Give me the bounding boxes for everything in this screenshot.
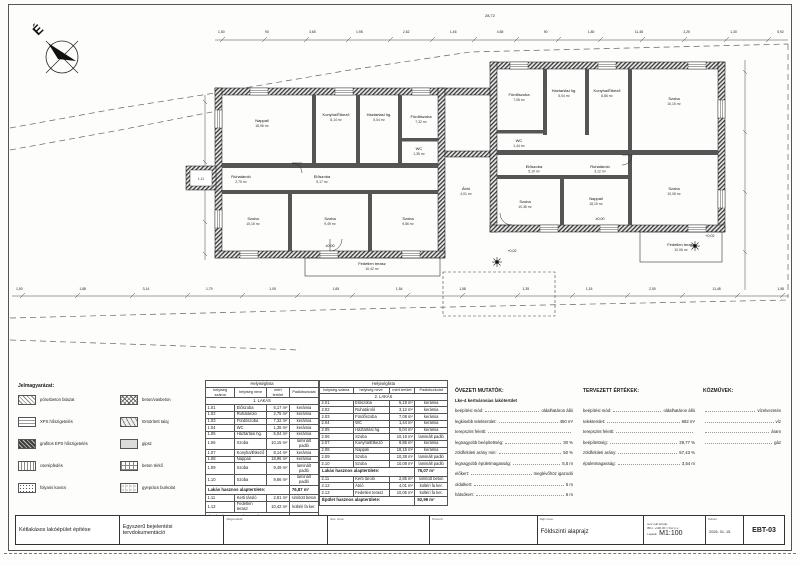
svg-text:Szoba: Szoba bbox=[324, 216, 336, 221]
legend-column-right: beton/vasbetontömörített talajgipszbeton… bbox=[120, 395, 208, 493]
svg-text:7,32 m²: 7,32 m² bbox=[415, 120, 427, 124]
column-header-area: mért terület bbox=[266, 387, 289, 398]
legend-item: XPS hőszigetelés bbox=[18, 417, 106, 427]
legend-title: Jelmagyarázat: bbox=[18, 383, 208, 389]
title-block-client-name: Név, címe: bbox=[328, 516, 430, 544]
dimension-number: 1,58 bbox=[459, 288, 466, 291]
summary-row: Lakás hasznos alapterülete: 76,87 m² bbox=[206, 486, 319, 495]
dimension-number: 2,62 bbox=[403, 31, 410, 34]
svg-text:9,49 m²: 9,49 m² bbox=[324, 222, 336, 226]
zoning-indicators-panel: ÖVEZETI MUTATÓK: Lke-4 kertvárosias lakó… bbox=[455, 388, 573, 503]
svg-text:Nappali: Nappali bbox=[589, 196, 603, 201]
title-block: Kétlakásos lakóépület építése Egyszerű b… bbox=[15, 515, 785, 545]
dimension-number: 1,15 bbox=[586, 288, 593, 291]
dimension-number: 1,35 bbox=[523, 288, 530, 291]
svg-text:Háztartási hg.: Háztartási hg. bbox=[367, 112, 392, 117]
legend-item: tömörített talaj bbox=[120, 417, 208, 427]
utilities-panel: KÖZMŰVEK: vízelvezetésvízáramgáz bbox=[703, 388, 781, 450]
tree-symbol bbox=[492, 257, 502, 267]
floor-plan-svg: É 28,72 bbox=[0, 0, 800, 380]
svg-text:7,08 m²: 7,08 m² bbox=[513, 98, 525, 102]
info-row: legnagyobb beépítettség:30 % bbox=[455, 440, 573, 445]
dimension-number: 1,98 bbox=[356, 31, 363, 34]
svg-text:Ruhatároló: Ruhatároló bbox=[590, 164, 610, 169]
zoning-title: ÖVEZETI MUTATÓK: bbox=[455, 388, 573, 394]
sheet-edge-line bbox=[4, 553, 796, 554]
svg-text:Szoba: Szoba bbox=[247, 216, 259, 221]
dimension-number: 1,50 bbox=[218, 31, 225, 34]
svg-text:10,15 m²: 10,15 m² bbox=[667, 102, 681, 106]
info-row: előkert:meglévőhöz igazodó bbox=[455, 471, 573, 476]
info-row: terepszint feletti: bbox=[583, 429, 695, 434]
info-row: beépítettség:29,77 % bbox=[583, 440, 695, 445]
dimension-number: 1,46 bbox=[450, 31, 457, 34]
dimension-number: 1,80 bbox=[588, 31, 595, 34]
legend-item: folyami kavics bbox=[18, 483, 106, 493]
level-marker: +0,02 bbox=[705, 234, 714, 238]
table-row: 1.07Konyha/Étkező8,14 m²kerámia bbox=[206, 450, 319, 457]
table-row: 1.11Kerti tároló2,81 m²simított beton bbox=[206, 495, 319, 502]
svg-text:Fürdőszoba: Fürdőszoba bbox=[508, 92, 530, 97]
svg-text:WC: WC bbox=[416, 146, 423, 151]
svg-text:Átrió: Átrió bbox=[462, 186, 471, 191]
table-title: Helyiséglista bbox=[206, 381, 319, 388]
legend-item: pórusbeton falazat bbox=[18, 395, 106, 405]
table-row: 1.12Fedetlen terasz10,42 m²kültéri fa ke… bbox=[206, 501, 319, 512]
dash-swatch-icon bbox=[18, 417, 36, 427]
svg-text:Előszoba: Előszoba bbox=[314, 174, 331, 179]
section-header: 2. LAKÁS bbox=[320, 394, 448, 401]
table-row: 2.07Konyha/Étkező8,86 m²kerámia bbox=[320, 440, 448, 447]
drawing-sheet: É 28,72 bbox=[0, 0, 800, 566]
dimension-number: 4,65 bbox=[497, 31, 504, 34]
svg-text:10,15 m²: 10,15 m² bbox=[246, 222, 260, 226]
info-row: épületmagasság:3,54 m bbox=[583, 461, 695, 466]
svg-text:Szoba: Szoba bbox=[668, 186, 680, 191]
column-header-number: helyiség száma bbox=[206, 387, 235, 398]
svg-text:Szoba: Szoba bbox=[402, 216, 414, 221]
table-row: 2.08Nappali18,15 m²kerámia bbox=[320, 447, 448, 454]
info-row: vízelvezetés bbox=[703, 408, 781, 413]
legend-item: gyeprács burkolat bbox=[120, 483, 208, 493]
dimension-number: 3,65 bbox=[309, 31, 316, 34]
title-block-designer: Tervező: bbox=[430, 516, 538, 544]
svg-text:Háztartási hg.: Háztartási hg. bbox=[552, 88, 577, 93]
legend-item: beton/vasbeton bbox=[120, 395, 208, 405]
legend-item: gipsz bbox=[120, 439, 208, 449]
table-row: 1.02Ruhatároló2,75 m²kerámia bbox=[206, 411, 319, 418]
table-title: Helyiséglista bbox=[320, 381, 448, 388]
dimension-number: 1,54 bbox=[396, 288, 403, 291]
info-row: legnagyobb épületmagasság:5,5 m bbox=[455, 461, 573, 466]
info-row: zöldfelületi arány:57,43 % bbox=[583, 450, 695, 455]
date-label: Dátum: bbox=[708, 517, 718, 521]
table-row: 2.03Fürdőszoba7,08 m²kerámia bbox=[320, 414, 448, 421]
dimension-number: 1,30 bbox=[730, 31, 737, 34]
room-schedule-apartment-1: Helyiséglista helyiség száma helyiség ne… bbox=[205, 380, 319, 522]
dashed-extension-outline bbox=[443, 272, 555, 316]
info-row: legkisebb telekterület:450 m² bbox=[455, 419, 573, 424]
legend-item: cserépfedés bbox=[18, 461, 106, 471]
designer-label: Tervező: bbox=[432, 517, 443, 521]
svg-text:10,38 m²: 10,38 m² bbox=[518, 205, 532, 209]
title-block-client: Megrendelő: bbox=[224, 516, 328, 544]
svg-text:8,86 m²: 8,86 m² bbox=[601, 94, 613, 98]
svg-text:5,04 m²: 5,04 m² bbox=[558, 94, 570, 98]
svg-text:3,12 m²: 3,12 m² bbox=[594, 170, 606, 174]
dimension-number: 1,88 bbox=[79, 288, 86, 291]
drawing-label: Rajz neve: bbox=[540, 517, 554, 521]
dimension-number: 2,25 bbox=[683, 31, 690, 34]
svg-text:10,06 m²: 10,06 m² bbox=[674, 248, 688, 252]
svg-text:Szoba: Szoba bbox=[519, 199, 531, 204]
info-row: gáz bbox=[703, 440, 781, 445]
info-row: terepszint feletti: bbox=[455, 429, 573, 434]
solid-swatch-icon bbox=[120, 439, 138, 449]
table-row: 2.13Fedetlen terasz10,06 m²kültéri fa ke… bbox=[320, 490, 448, 497]
table-row: 2.04WC1,44 m²kerámia bbox=[320, 420, 448, 427]
table-row: 2.10Szoba10,08 m²laminált padló bbox=[320, 461, 448, 468]
table-row: 1.04WC1,35 m²kerámia bbox=[206, 425, 319, 432]
svg-text:5,04 m²: 5,04 m² bbox=[373, 118, 385, 122]
svg-text:Szoba: Szoba bbox=[668, 96, 680, 101]
table-row: 1.03Fürdőszoba7,32 m²kerámia bbox=[206, 418, 319, 425]
svg-text:1,35 m²: 1,35 m² bbox=[413, 152, 425, 156]
bottom-dimension-numbers: 1,501,883,141,791,051,651,541,581,351,15… bbox=[16, 288, 784, 291]
info-row: beépítési mód:oldalhatáron álló bbox=[455, 408, 573, 413]
legend-item: beton térkő bbox=[120, 461, 208, 471]
dimension-number: 1,05 bbox=[269, 288, 276, 291]
dark-swatch-icon bbox=[18, 439, 36, 449]
dimension-number: 2,50 bbox=[649, 288, 656, 291]
summary-row: Lakás hasznos alapterülete: 76,07 m² bbox=[320, 467, 448, 476]
info-row: beépítési mód:oldalhatáron álló bbox=[583, 408, 695, 413]
svg-text:Fedetlen terasz: Fedetlen terasz bbox=[358, 261, 386, 266]
table-row: 2.02Ruhatároló3,12 m²kerámia bbox=[320, 407, 448, 414]
grid-swatch-icon bbox=[120, 461, 138, 471]
overall-dimension: 28,72 bbox=[485, 13, 496, 18]
dimension-number: 11,48 bbox=[712, 288, 720, 291]
table-row: 1.01Előszoba5,17 m²kerámia bbox=[206, 405, 319, 412]
info-row: oldalkert:5 m bbox=[455, 482, 573, 487]
top-dimension-numbers: 1,50903,651,982,621,464,65901,8011,482,2… bbox=[218, 31, 784, 34]
room-schedule-apartment-2: Helyiséglista helyiség száma helyiség ne… bbox=[319, 380, 448, 506]
north-compass-icon: É bbox=[30, 21, 78, 73]
table-row: 2.05Háztartási hg.5,04 m²kerámia bbox=[320, 427, 448, 434]
table-row: 2.12Átrió4,01 m²kültéri fa ker. bbox=[320, 483, 448, 490]
column-header-name: helyiség neve bbox=[235, 387, 267, 398]
client-name-label: Név, címe: bbox=[330, 517, 344, 521]
svg-text:Fürdőszoba: Fürdőszoba bbox=[410, 114, 432, 119]
dimension-number: 1,65 bbox=[333, 288, 340, 291]
column-header-floor: Padlóburkolat bbox=[289, 387, 318, 398]
svg-text:4,01 m²: 4,01 m² bbox=[460, 192, 472, 196]
svg-text:Konyha/Étkező: Konyha/Étkező bbox=[594, 88, 622, 93]
svg-text:9,86 m²: 9,86 m² bbox=[402, 222, 414, 226]
table-row: 2.09Szoba10,38 m²laminált padló bbox=[320, 454, 448, 461]
info-row: telekterület:682 m² bbox=[583, 419, 695, 424]
cross-swatch-icon bbox=[120, 395, 138, 405]
svg-text:18,96 m²: 18,96 m² bbox=[255, 124, 269, 128]
client-label: Megrendelő: bbox=[226, 517, 243, 521]
svg-text:18,15 m²: 18,15 m² bbox=[589, 202, 603, 206]
svg-text:2,75 m²: 2,75 m² bbox=[235, 180, 247, 184]
svg-text:1,44 m²: 1,44 m² bbox=[513, 144, 525, 148]
level-marker: ±0,00 bbox=[326, 244, 335, 248]
info-row: hátsókert:6 m bbox=[455, 492, 573, 497]
svg-text:Ruhatároló: Ruhatároló bbox=[231, 174, 251, 179]
level-marker: +0,02 bbox=[507, 249, 516, 253]
info-row: víz bbox=[703, 419, 781, 424]
utilities-title: KÖZMŰVEK: bbox=[703, 388, 781, 394]
griddots-swatch-icon bbox=[120, 483, 138, 493]
table-row: 1.06Szoba10,15 m²laminált padló bbox=[206, 438, 319, 449]
dimension-number: 3,14 bbox=[143, 288, 150, 291]
level-marker: ±0,00 bbox=[596, 217, 605, 221]
svg-text:8,14 m²: 8,14 m² bbox=[330, 118, 342, 122]
svg-text:Nappali: Nappali bbox=[255, 118, 269, 123]
svg-text:WC: WC bbox=[516, 138, 523, 143]
dimension-number: 1,50 bbox=[16, 288, 23, 291]
dimension-number: 1,58 bbox=[777, 288, 784, 291]
footer-row: Épület hasznos alapterülete: 92,99 m² bbox=[320, 496, 448, 505]
title-block-sheet-number: EBT-03 bbox=[744, 516, 784, 544]
dimension-number: 1,79 bbox=[206, 288, 213, 291]
section-header: 1. LAKÁS bbox=[206, 398, 319, 405]
dimension-number: 90 bbox=[265, 31, 269, 34]
title-block-project: Kétlakásos lakóépület építése bbox=[16, 516, 120, 544]
scale-label: Lépték: bbox=[647, 533, 657, 537]
table-row: 1.09Szoba9,49 m²laminált padló bbox=[206, 463, 319, 474]
table-row: 2.01Előszoba5,19 m²kerámia bbox=[320, 400, 448, 407]
svg-text:Előszoba: Előszoba bbox=[526, 164, 543, 169]
date-value: 2026. 01. 15. bbox=[709, 530, 740, 534]
svg-text:Konyha/Étkező: Konyha/Étkező bbox=[323, 112, 351, 117]
info-row: zöldfelületi arány min:50 % bbox=[455, 450, 573, 455]
svg-text:10,08 m²: 10,08 m² bbox=[667, 192, 681, 196]
svg-text:1.11: 1.11 bbox=[198, 177, 204, 181]
title-block-date: Dátum: 2026. 01. 15. bbox=[706, 516, 744, 544]
title-block-scale: terv null szintje: Bfm: +130,00 = Fsz p.… bbox=[644, 516, 706, 544]
table-row: 1.10Szoba9,86 m²laminált padló bbox=[206, 474, 319, 485]
info-row: áram bbox=[703, 429, 781, 434]
svg-text:10,42 m²: 10,42 m² bbox=[365, 267, 379, 271]
compass-label: É bbox=[30, 21, 47, 38]
dimension-number: 11,48 bbox=[635, 31, 643, 34]
hatch-swatch-icon bbox=[18, 395, 36, 405]
scale-value: M1:100 bbox=[659, 530, 682, 537]
legend-item: grafitos EPS hőszigetelés bbox=[18, 439, 106, 449]
planned-title: TERVEZETT ÉRTÉKEK: bbox=[583, 388, 695, 394]
table-row: 2.06Szoba10,15 m²laminált padló bbox=[320, 434, 448, 441]
sheet-number: EBT-03 bbox=[747, 527, 781, 534]
title-block-drawing: Rajz neve: Földszinti alaprajz bbox=[538, 516, 645, 544]
planned-values-panel: TERVEZETT ÉRTÉKEK: beépítési mód:oldalha… bbox=[583, 388, 695, 471]
svg-text:Fedetlen terasz: Fedetlen terasz bbox=[667, 242, 695, 247]
svg-text:5,17 m²: 5,17 m² bbox=[316, 180, 328, 184]
zoning-subtitle: Lke-4 kertvárosias lakóterület bbox=[455, 398, 573, 403]
title-block-doc-type: Egyszerű bejelentési tervdokumentáció bbox=[120, 516, 225, 544]
legend-panel: Jelmagyarázat: pórusbeton falazatXPS hős… bbox=[18, 383, 208, 493]
legend-column-left: pórusbeton falazatXPS hőszigetelésgrafit… bbox=[18, 395, 106, 493]
table-row: 1.05Háztartási hg.5,04 m²kerámia bbox=[206, 431, 319, 438]
dimension-number: 5,92 bbox=[777, 31, 784, 34]
table-row: 2.11Kerti tároló2,85 m²simított beton bbox=[320, 476, 448, 483]
dimension-number: 90 bbox=[544, 31, 548, 34]
project-title: Kétlakásos lakóépület építése bbox=[19, 527, 116, 533]
svg-text:5,19 m²: 5,19 m² bbox=[528, 170, 540, 174]
tri-swatch-icon bbox=[120, 417, 138, 427]
vert-swatch-icon bbox=[18, 461, 36, 471]
door-swing-arcs bbox=[500, 155, 632, 225]
dots-swatch-icon bbox=[18, 483, 36, 493]
table-row: 1.08Nappali18,96 m²kerámia bbox=[206, 456, 319, 463]
doc-type-line2: tervdokumentáció bbox=[123, 530, 221, 536]
drawing-name: Földszinti alaprajz bbox=[541, 529, 641, 535]
